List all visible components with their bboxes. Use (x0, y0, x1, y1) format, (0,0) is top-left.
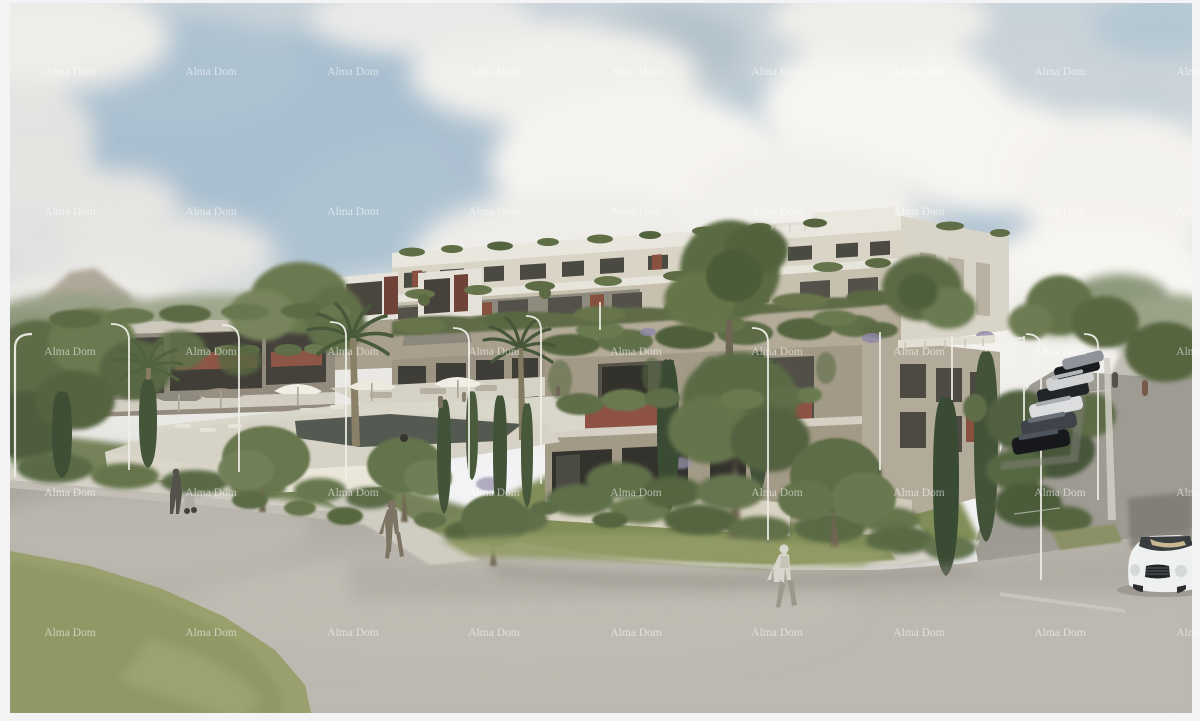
svg-text:Alma Dom: Alma Dom (1176, 66, 1200, 78)
svg-text:Alma Dom: Alma Dom (1034, 66, 1085, 78)
svg-text:Alma Dom: Alma Dom (468, 627, 519, 639)
svg-text:Alma Dom: Alma Dom (893, 346, 944, 358)
svg-text:Alma Dom: Alma Dom (893, 627, 944, 639)
svg-text:Alma Dom: Alma Dom (327, 66, 378, 78)
svg-text:Alma Dom: Alma Dom (610, 206, 661, 218)
svg-text:Alma Dom: Alma Dom (44, 627, 95, 639)
svg-text:Alma Dom: Alma Dom (610, 627, 661, 639)
svg-text:Alma Dom: Alma Dom (1176, 487, 1200, 499)
svg-text:Alma Dom: Alma Dom (751, 66, 802, 78)
svg-text:Alma Dom: Alma Dom (468, 346, 519, 358)
svg-text:Alma Dom: Alma Dom (44, 487, 95, 499)
svg-text:Alma Dom: Alma Dom (327, 627, 378, 639)
svg-text:Alma Dom: Alma Dom (327, 206, 378, 218)
svg-text:Alma Dom: Alma Dom (468, 206, 519, 218)
svg-text:Alma Dom: Alma Dom (1034, 206, 1085, 218)
svg-text:Alma Dom: Alma Dom (751, 206, 802, 218)
svg-text:Alma Dom: Alma Dom (185, 346, 236, 358)
svg-text:Alma Dom: Alma Dom (893, 206, 944, 218)
svg-text:Alma Dom: Alma Dom (893, 487, 944, 499)
svg-text:Alma Dom: Alma Dom (1034, 487, 1085, 499)
svg-text:Alma Dom: Alma Dom (185, 206, 236, 218)
svg-text:Alma Dom: Alma Dom (185, 627, 236, 639)
svg-text:Alma Dom: Alma Dom (468, 487, 519, 499)
svg-text:Alma Dom: Alma Dom (1034, 346, 1085, 358)
svg-text:Alma Dom: Alma Dom (44, 66, 95, 78)
svg-text:Alma Dom: Alma Dom (1176, 206, 1200, 218)
svg-text:Alma Dom: Alma Dom (185, 66, 236, 78)
svg-text:Alma Dom: Alma Dom (751, 487, 802, 499)
svg-text:Alma Dom: Alma Dom (185, 487, 236, 499)
svg-text:Alma Dom: Alma Dom (1176, 627, 1200, 639)
svg-text:Alma Dom: Alma Dom (610, 346, 661, 358)
svg-text:Alma Dom: Alma Dom (751, 627, 802, 639)
svg-text:Alma Dom: Alma Dom (1034, 627, 1085, 639)
svg-text:Alma Dom: Alma Dom (44, 206, 95, 218)
svg-text:Alma Dom: Alma Dom (751, 346, 802, 358)
svg-text:Alma Dom: Alma Dom (610, 66, 661, 78)
svg-text:Alma Dom: Alma Dom (44, 346, 95, 358)
svg-text:Alma Dom: Alma Dom (893, 66, 944, 78)
svg-text:Alma Dom: Alma Dom (1176, 346, 1200, 358)
svg-text:Alma Dom: Alma Dom (327, 487, 378, 499)
svg-text:Alma Dom: Alma Dom (610, 487, 661, 499)
svg-text:Alma Dom: Alma Dom (468, 66, 519, 78)
svg-text:Alma Dom: Alma Dom (327, 346, 378, 358)
